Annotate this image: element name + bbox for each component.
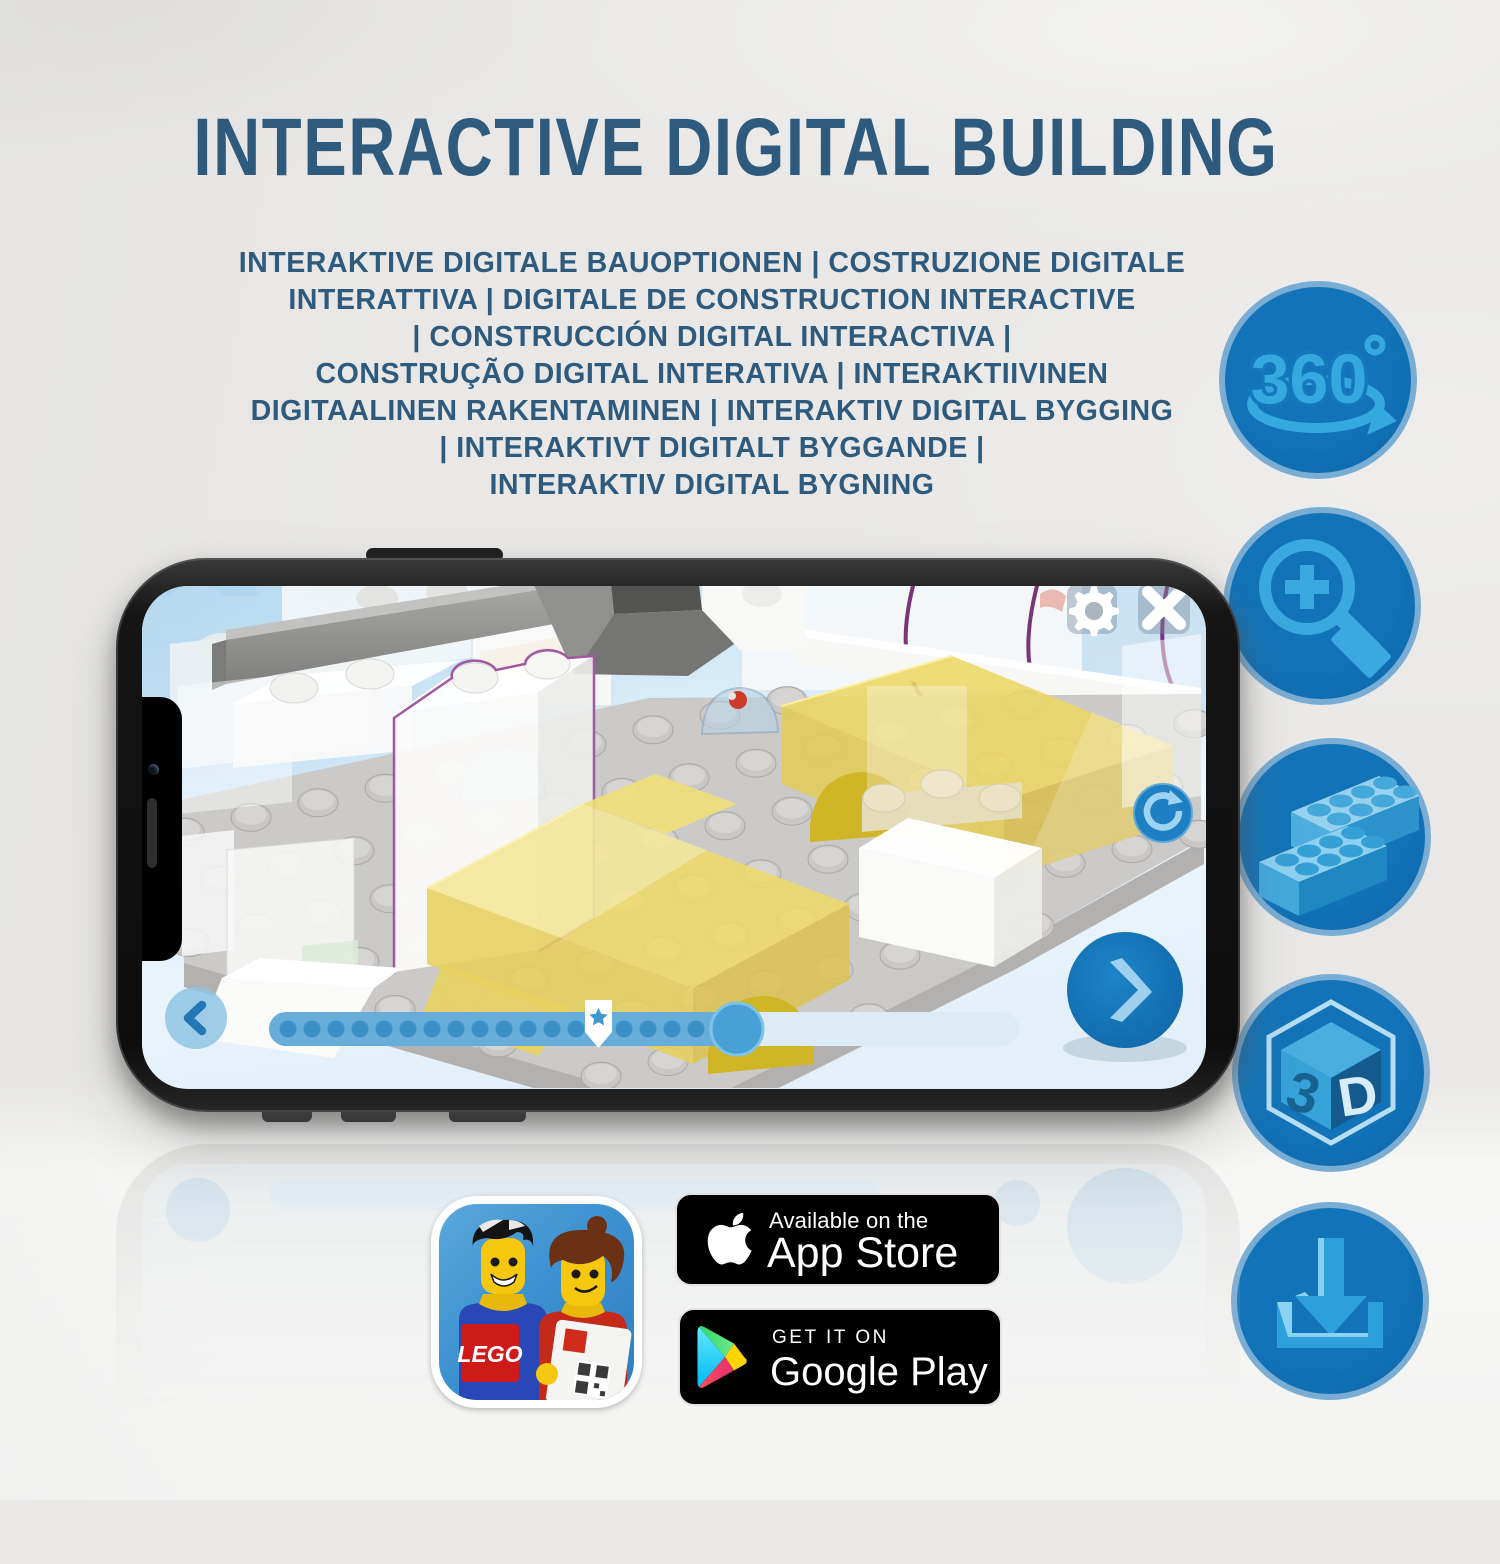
- svg-text:360: 360: [1251, 340, 1368, 418]
- svg-text:LEGO: LEGO: [457, 1341, 522, 1367]
